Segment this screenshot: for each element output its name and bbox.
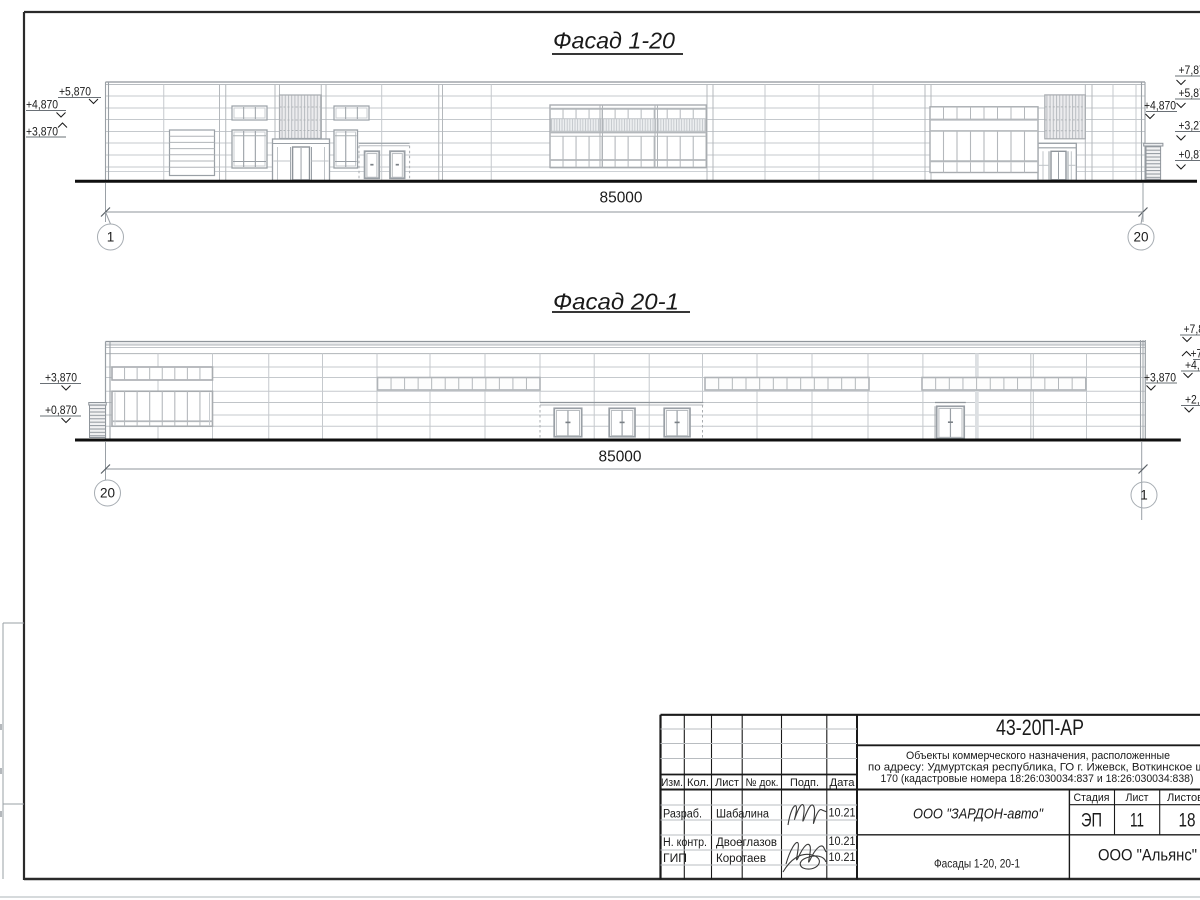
svg-text:Двоеглазов: Двоеглазов	[716, 837, 777, 849]
svg-text:Фасад 20-1: Фасад 20-1	[553, 289, 679, 315]
svg-text:+7,870: +7,870	[1184, 324, 1200, 336]
svg-text:Коротаев: Коротаев	[716, 853, 766, 865]
svg-text:1: 1	[107, 230, 115, 245]
svg-text:Фасады 1-20, 20-1: Фасады 1-20, 20-1	[934, 857, 1020, 871]
svg-text:170 (кадастровые номера 18:26:: 170 (кадастровые номера 18:26:030034:837…	[881, 773, 1194, 785]
svg-text:+3,270: +3,270	[1179, 121, 1200, 133]
svg-text:10.21: 10.21	[829, 808, 856, 820]
svg-text:85000: 85000	[599, 449, 642, 466]
svg-text:1: 1	[1140, 488, 1148, 503]
svg-text:+4,870: +4,870	[1185, 360, 1200, 372]
svg-text:ООО "Альянс": ООО "Альянс"	[1098, 847, 1197, 865]
svg-text:Фасад 1-20: Фасад 1-20	[553, 28, 675, 54]
svg-text:+0,870: +0,870	[1179, 150, 1200, 162]
svg-text:по адресу: Удмуртская республи: по адресу: Удмуртская республика, ГО г. …	[868, 762, 1200, 774]
svg-text:+5,870: +5,870	[1179, 88, 1200, 100]
svg-text:Лист: Лист	[715, 777, 739, 789]
svg-text:+7,570: +7,570	[1191, 349, 1200, 361]
svg-text:85000: 85000	[600, 190, 643, 207]
svg-text:Листов: Листов	[1167, 792, 1200, 804]
svg-text:Кол.: Кол.	[687, 777, 709, 789]
svg-text:№ док.: № док.	[746, 777, 779, 789]
svg-text:+2,100: +2,100	[1185, 395, 1200, 407]
svg-text:+7,870: +7,870	[1179, 65, 1200, 77]
svg-text:Дата: Дата	[830, 777, 856, 789]
svg-text:18: 18	[1179, 811, 1196, 832]
svg-text:+0,870: +0,870	[45, 405, 77, 417]
svg-text:ГИП: ГИП	[663, 853, 687, 865]
svg-text:Изм.: Изм.	[661, 777, 683, 789]
svg-text:Стадия: Стадия	[1074, 792, 1110, 804]
svg-text:Лист: Лист	[1126, 792, 1149, 804]
svg-text:Объекты коммерческого назначен: Объекты коммерческого назначения, распол…	[906, 750, 1170, 762]
svg-text:Разраб.: Разраб.	[663, 809, 702, 821]
svg-text:+3,870: +3,870	[45, 373, 77, 385]
svg-text:10.21: 10.21	[829, 836, 856, 848]
svg-text:20: 20	[100, 486, 115, 501]
svg-text:Шабалина: Шабалина	[716, 809, 770, 821]
svg-text:Подп.: Подп.	[790, 777, 819, 789]
svg-text:20: 20	[1133, 230, 1148, 245]
svg-text:ООО "ЗАРДОН-авто": ООО "ЗАРДОН-авто"	[913, 807, 1044, 823]
svg-text:+4,870: +4,870	[1144, 101, 1176, 113]
svg-text:43-20П-АР: 43-20П-АР	[996, 715, 1084, 740]
svg-text:+5,870: +5,870	[59, 87, 91, 99]
svg-text:Н. контр.: Н. контр.	[663, 837, 707, 849]
svg-text:10.21: 10.21	[829, 852, 856, 864]
svg-text:ЭП: ЭП	[1081, 811, 1102, 832]
svg-text:11: 11	[1130, 811, 1144, 832]
svg-text:+4,870: +4,870	[26, 100, 58, 112]
